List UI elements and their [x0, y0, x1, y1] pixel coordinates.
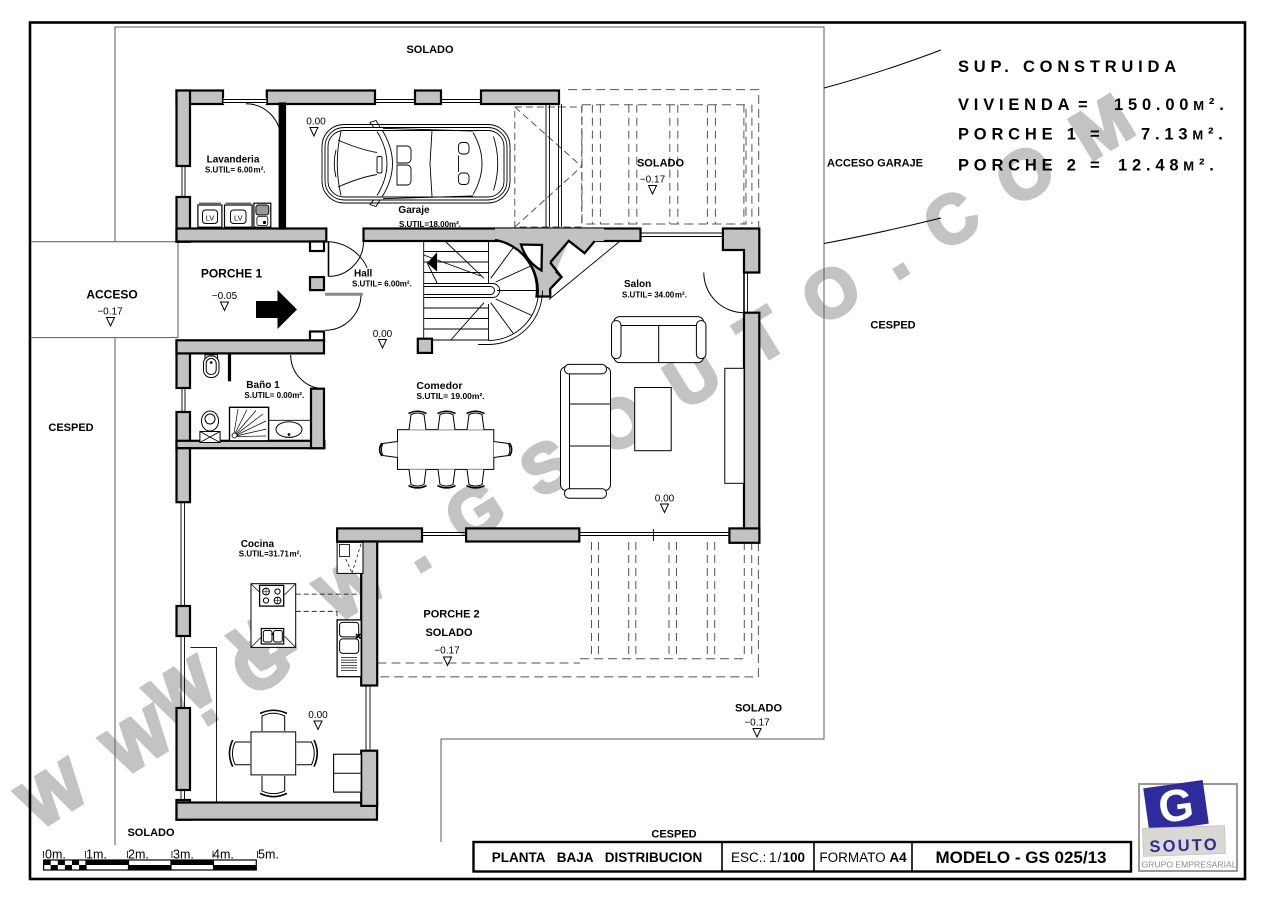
svg-text:S.UTIL= 6.00 m².: S.UTIL= 6.00 m².: [205, 166, 265, 175]
svg-text:ACCESO GARAJE: ACCESO GARAJE: [827, 158, 923, 170]
svg-text:CESPED: CESPED: [651, 829, 696, 841]
svg-text:ESC.: 1 / 100: ESC.: 1 / 100: [731, 850, 805, 865]
svg-text:SOLADO: SOLADO: [425, 627, 473, 639]
svg-text:CESPED: CESPED: [870, 320, 915, 332]
svg-text:SUP. CONSTRUIDA: SUP. CONSTRUIDA: [958, 58, 1181, 76]
svg-text:PORCHE 1=7.13M².: PORCHE 1=7.13M².: [958, 126, 1228, 144]
svg-text:ACCESO: ACCESO: [86, 288, 137, 302]
svg-text:G: G: [1155, 778, 1197, 833]
svg-text:Cocina: Cocina: [241, 539, 275, 550]
svg-text:SOLADO: SOLADO: [406, 44, 454, 56]
svg-text:Baño 1: Baño 1: [246, 380, 280, 391]
svg-text:−0.17: −0.17: [744, 718, 770, 729]
svg-text:0.00: 0.00: [308, 710, 328, 721]
svg-text:LV: LV: [234, 214, 243, 223]
svg-text:−0.05: −0.05: [212, 291, 238, 302]
svg-text:S.UTIL= 6.00m².: S.UTIL= 6.00m².: [352, 280, 412, 289]
svg-text:PLANTA BAJA DISTRIBUCION: PLANTA BAJA DISTRIBUCION: [492, 850, 703, 865]
svg-text:FORMATO A4: FORMATO A4: [819, 850, 907, 865]
svg-text:0.00: 0.00: [655, 494, 675, 505]
svg-text:SOLADO: SOLADO: [637, 158, 685, 170]
svg-text:LV: LV: [206, 214, 215, 223]
svg-text:Lavanderia: Lavanderia: [207, 155, 260, 166]
svg-text:S.UTIL=31.71 m².: S.UTIL=31.71 m².: [239, 550, 302, 559]
svg-text:Hall: Hall: [354, 269, 373, 280]
svg-text:PORCHE 2: PORCHE 2: [423, 609, 479, 621]
svg-text:GRUPO EMPRESARIAL: GRUPO EMPRESARIAL: [1141, 860, 1236, 870]
svg-text:CESPED: CESPED: [48, 422, 93, 434]
svg-text:S.UTIL= 19.00m².: S.UTIL= 19.00m².: [416, 391, 484, 401]
svg-text:0.00: 0.00: [306, 117, 326, 128]
svg-text:Garaje: Garaje: [398, 205, 430, 216]
svg-text:PORCHE 1: PORCHE 1: [201, 267, 263, 281]
svg-text:5m.: 5m.: [258, 848, 279, 862]
svg-text:S.UTIL=18.00m².: S.UTIL=18.00m².: [399, 220, 461, 229]
svg-text:−0.17: −0.17: [97, 307, 123, 318]
svg-text:−0.17: −0.17: [640, 175, 666, 186]
svg-text:Salon: Salon: [624, 279, 651, 290]
svg-text:SOLADO: SOLADO: [735, 703, 783, 715]
svg-text:S.UTIL= 0.00m².: S.UTIL= 0.00m².: [244, 391, 304, 400]
svg-text:S.UTIL= 34.00 m².: S.UTIL= 34.00 m².: [622, 291, 687, 300]
svg-text:SOUTO: SOUTO: [1149, 836, 1219, 856]
svg-text:0.00: 0.00: [373, 329, 393, 340]
svg-text:MODELO - GS 025/13: MODELO - GS 025/13: [936, 848, 1107, 867]
svg-text:SOLADO: SOLADO: [127, 827, 175, 839]
svg-text:−0.17: −0.17: [434, 646, 460, 657]
